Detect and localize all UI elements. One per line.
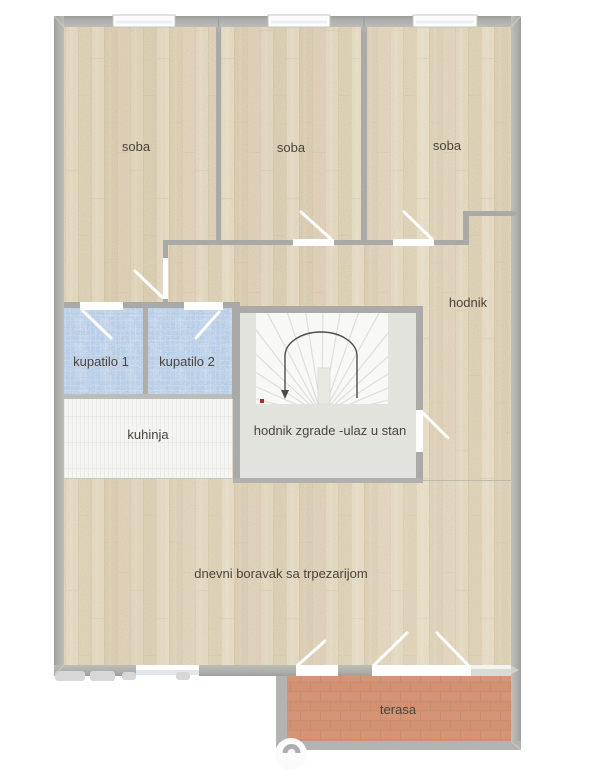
svg-text:soba: soba xyxy=(277,140,306,155)
svg-text:kupatilo 2: kupatilo 2 xyxy=(159,354,215,369)
svg-text:soba: soba xyxy=(433,138,462,153)
svg-text:hodnik: hodnik xyxy=(449,295,488,310)
svg-text:kupatilo 1: kupatilo 1 xyxy=(73,354,129,369)
svg-text:soba: soba xyxy=(122,139,151,154)
svg-text:hodnik zgrade -ulaz u stan: hodnik zgrade -ulaz u stan xyxy=(254,423,406,438)
svg-text:dnevni boravak sa trpezarijom: dnevni boravak sa trpezarijom xyxy=(194,566,367,581)
svg-text:kuhinja: kuhinja xyxy=(127,427,169,442)
svg-text:terasa: terasa xyxy=(380,702,417,717)
